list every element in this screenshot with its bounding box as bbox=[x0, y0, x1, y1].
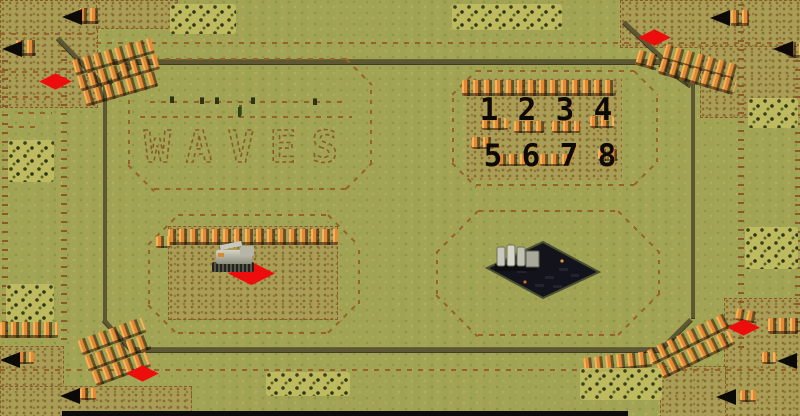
numbers-octagon-edge bbox=[476, 70, 634, 72]
cave-entrance-icon bbox=[0, 352, 20, 368]
sand-field bbox=[96, 0, 178, 29]
ring-road-left bbox=[103, 78, 107, 320]
dash-scatter bbox=[18, 112, 52, 114]
waves-inner-line bbox=[140, 116, 352, 118]
numbers-octagon-edge bbox=[452, 94, 454, 162]
base-octagon-corner bbox=[435, 211, 478, 254]
numbers-octagon-edge bbox=[656, 94, 658, 162]
numbers-octagon-edge bbox=[476, 184, 634, 186]
dashed-path-top bbox=[96, 42, 800, 44]
numbers-octagon-corner bbox=[633, 160, 658, 185]
cave-entrance-icon bbox=[60, 388, 80, 404]
wave-number: 1 bbox=[478, 92, 500, 128]
dashed-path-right bbox=[738, 2, 744, 348]
waves-octagon-edge bbox=[154, 58, 346, 60]
wave-number: 4 bbox=[592, 92, 614, 128]
wave-number: 2 bbox=[516, 92, 538, 128]
staging-octagon-edge bbox=[358, 244, 360, 304]
mcv-cab bbox=[240, 246, 254, 256]
waves-octagon-edge bbox=[370, 84, 372, 164]
shrub-patch bbox=[266, 372, 350, 396]
wave-number-row-1: 1 2 3 4 bbox=[478, 92, 614, 128]
cave-entrance-icon bbox=[773, 41, 793, 57]
wave-number: 7 bbox=[558, 138, 580, 174]
infantry-unit[interactable] bbox=[170, 97, 174, 103]
shrub-patch bbox=[170, 4, 236, 34]
base-octagon-edge bbox=[436, 252, 438, 294]
wave-number: 3 bbox=[554, 92, 576, 128]
base-light bbox=[523, 280, 526, 283]
cliff-ridge bbox=[731, 10, 749, 26]
shrub-patch bbox=[8, 140, 54, 182]
base-octagon-edge bbox=[658, 252, 660, 294]
wave-number-row-2: 5 6 7 8 bbox=[482, 138, 618, 174]
shrub-patch bbox=[745, 227, 798, 269]
flag-marker[interactable] bbox=[238, 107, 241, 117]
waves-octagon-edge bbox=[128, 84, 130, 164]
cave-entrance-icon bbox=[777, 353, 797, 369]
cliff-ridge bbox=[168, 229, 338, 245]
cave-entrance-icon bbox=[716, 389, 736, 405]
cliff-chip bbox=[18, 352, 34, 364]
dash-scatter bbox=[12, 96, 52, 98]
field-divider-path bbox=[0, 33, 96, 35]
base-octagon-edge bbox=[478, 334, 618, 336]
waves-octagon-edge bbox=[154, 188, 346, 190]
silo-tower bbox=[507, 245, 515, 266]
game-map[interactable]: WAVES 1 2 3 4 5 6 7 8 bbox=[0, 0, 800, 416]
map-edge-void bbox=[62, 411, 628, 416]
shrub-patch bbox=[748, 98, 798, 128]
wave-number: 8 bbox=[596, 138, 618, 174]
infantry-unit[interactable] bbox=[251, 98, 255, 104]
ring-road-bottom bbox=[133, 348, 659, 352]
numbers-octagon-corner bbox=[633, 70, 658, 95]
base-octagon-corner bbox=[617, 293, 660, 336]
staging-octagon-edge bbox=[148, 244, 150, 304]
shrub-patch bbox=[452, 4, 562, 30]
infantry-unit[interactable] bbox=[313, 99, 317, 105]
wave-number: 6 bbox=[520, 138, 542, 174]
waves-terrain-text: WAVES bbox=[142, 122, 352, 172]
silo-tower bbox=[497, 247, 505, 266]
cliff-ridge bbox=[768, 318, 798, 334]
infantry-unit[interactable] bbox=[215, 98, 219, 104]
shrub-patch bbox=[580, 368, 662, 400]
shrub-patch bbox=[6, 284, 54, 322]
cliff-ridge bbox=[0, 322, 58, 338]
ring-road-top bbox=[112, 60, 662, 64]
ring-road-right bbox=[691, 84, 695, 318]
cliff-chip bbox=[740, 390, 756, 402]
cliff-ridge bbox=[79, 8, 99, 24]
cave-entrance-icon bbox=[710, 10, 730, 26]
base-octagon-corner bbox=[617, 210, 660, 253]
cliff-chip bbox=[80, 388, 96, 400]
silo-tower bbox=[517, 247, 525, 266]
base-light bbox=[560, 259, 563, 262]
cliff-chip bbox=[156, 236, 170, 248]
mcv-detail bbox=[218, 253, 224, 257]
cave-entrance-icon bbox=[62, 9, 82, 25]
base-octagon-edge bbox=[478, 210, 618, 212]
cave-entrance-icon bbox=[2, 41, 22, 57]
cliff-chip bbox=[762, 352, 776, 364]
base-structure[interactable] bbox=[483, 238, 603, 302]
staging-octagon-edge bbox=[178, 332, 330, 334]
dash-scatter bbox=[8, 126, 38, 128]
storage-tank bbox=[526, 251, 539, 267]
staging-octagon-edge bbox=[178, 214, 330, 216]
infantry-unit[interactable] bbox=[200, 98, 204, 104]
dashed-path-left bbox=[61, 48, 67, 340]
waves-text-label: WAVES bbox=[144, 122, 340, 172]
wave-number: 5 bbox=[482, 138, 504, 174]
base-octagon-corner bbox=[435, 294, 478, 337]
